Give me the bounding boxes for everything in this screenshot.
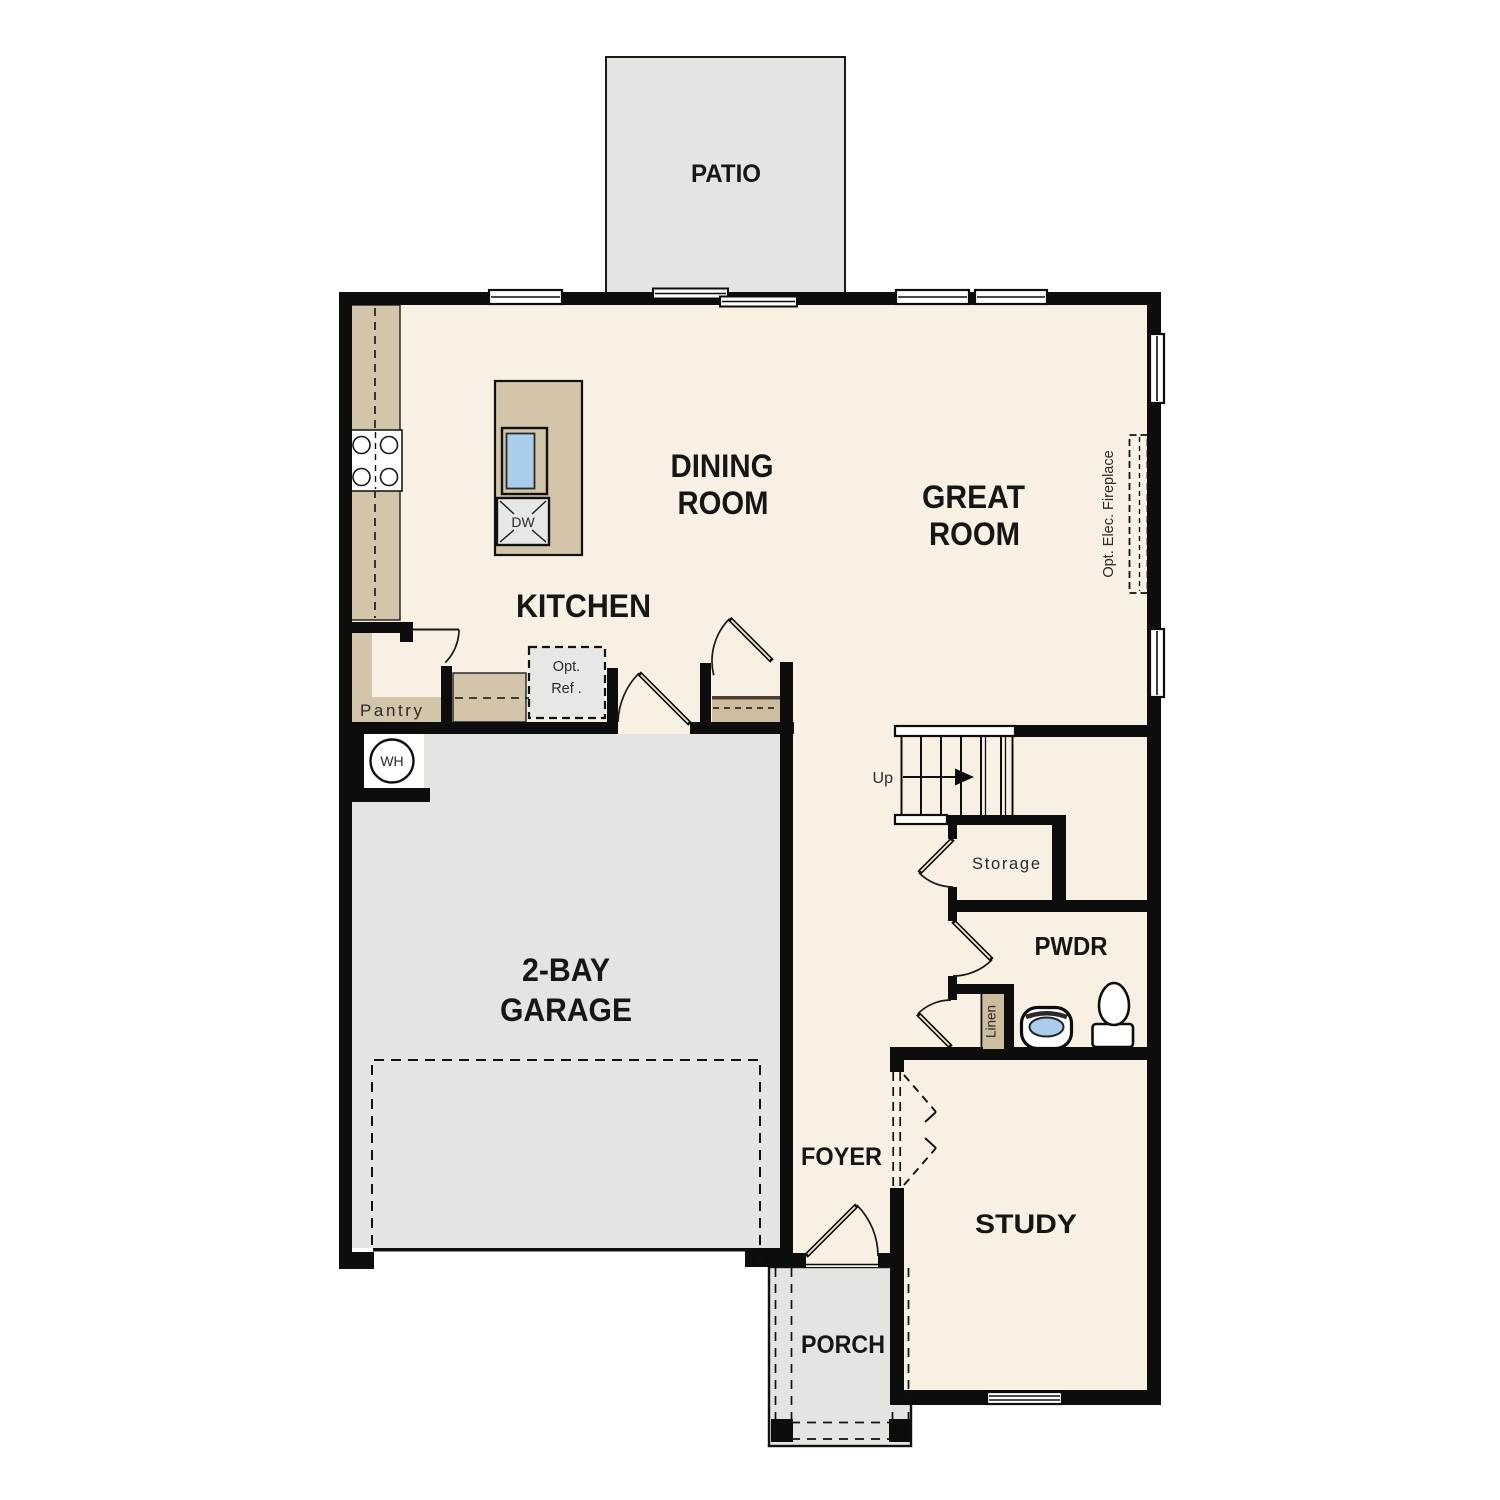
svg-text:DW: DW (511, 514, 535, 530)
svg-text:FOYER: FOYER (801, 1143, 882, 1171)
svg-text:Pantry: Pantry (360, 701, 423, 720)
svg-text:WH: WH (380, 753, 403, 769)
svg-text:STUDY: STUDY (975, 1209, 1077, 1239)
svg-text:Linen: Linen (984, 1005, 999, 1038)
svg-text:Ref .: Ref . (551, 681, 582, 697)
svg-text:ROOM: ROOM (678, 485, 769, 521)
svg-text:PATIO: PATIO (691, 160, 761, 188)
svg-text:Up: Up (873, 770, 894, 787)
svg-text:PWDR: PWDR (1035, 931, 1108, 961)
svg-text:GARAGE: GARAGE (500, 992, 632, 1028)
svg-text:Opt. Elec. Fireplace: Opt. Elec. Fireplace (1101, 450, 1117, 577)
svg-text:GREAT: GREAT (922, 479, 1025, 515)
svg-text:ROOM: ROOM (929, 516, 1020, 552)
svg-text:KITCHEN: KITCHEN (516, 588, 651, 624)
svg-text:2-BAY: 2-BAY (522, 952, 610, 988)
svg-text:PORCH: PORCH (801, 1331, 885, 1359)
svg-text:Opt.: Opt. (553, 659, 580, 675)
svg-text:DINING: DINING (671, 448, 774, 484)
